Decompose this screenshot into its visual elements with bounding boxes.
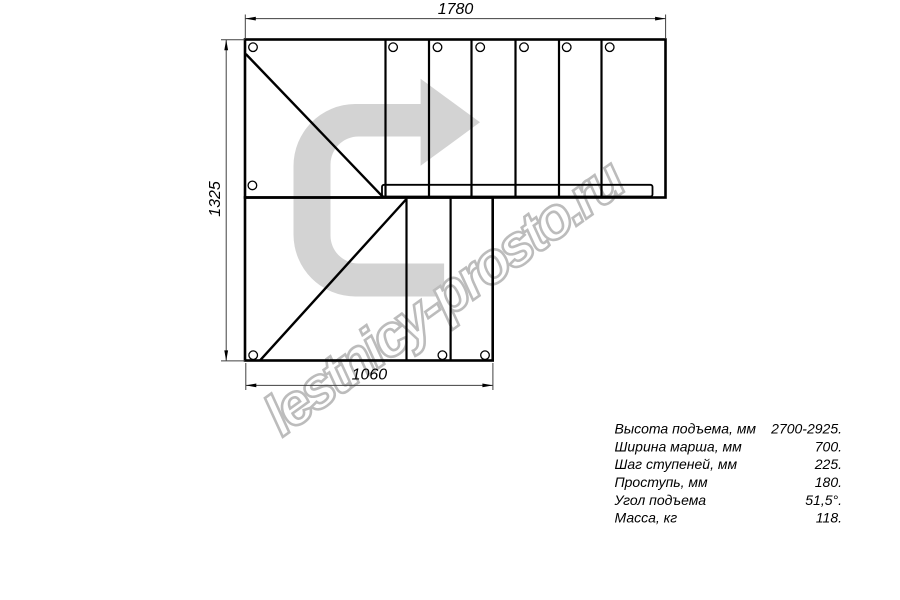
svg-text:1325: 1325 (207, 181, 224, 217)
svg-text:700.: 700. (815, 438, 842, 454)
svg-text:2700-2925.: 2700-2925. (770, 421, 842, 437)
svg-text:180.: 180. (815, 474, 842, 490)
svg-text:Ширина марша, мм: Ширина марша, мм (615, 438, 743, 454)
svg-text:51,5°.: 51,5°. (805, 492, 842, 508)
svg-text:118.: 118. (816, 510, 842, 526)
svg-text:225.: 225. (814, 456, 842, 472)
svg-text:1780: 1780 (438, 1, 474, 18)
svg-text:Шаг ступеней, мм: Шаг ступеней, мм (615, 456, 738, 472)
svg-text:1060: 1060 (352, 367, 388, 384)
svg-text:Высота подъема, мм: Высота подъема, мм (615, 421, 757, 437)
svg-text:Проступь, мм: Проступь, мм (615, 474, 709, 490)
svg-text:Масса, кг: Масса, кг (615, 510, 678, 526)
svg-text:Угол подъема: Угол подъема (614, 492, 707, 508)
